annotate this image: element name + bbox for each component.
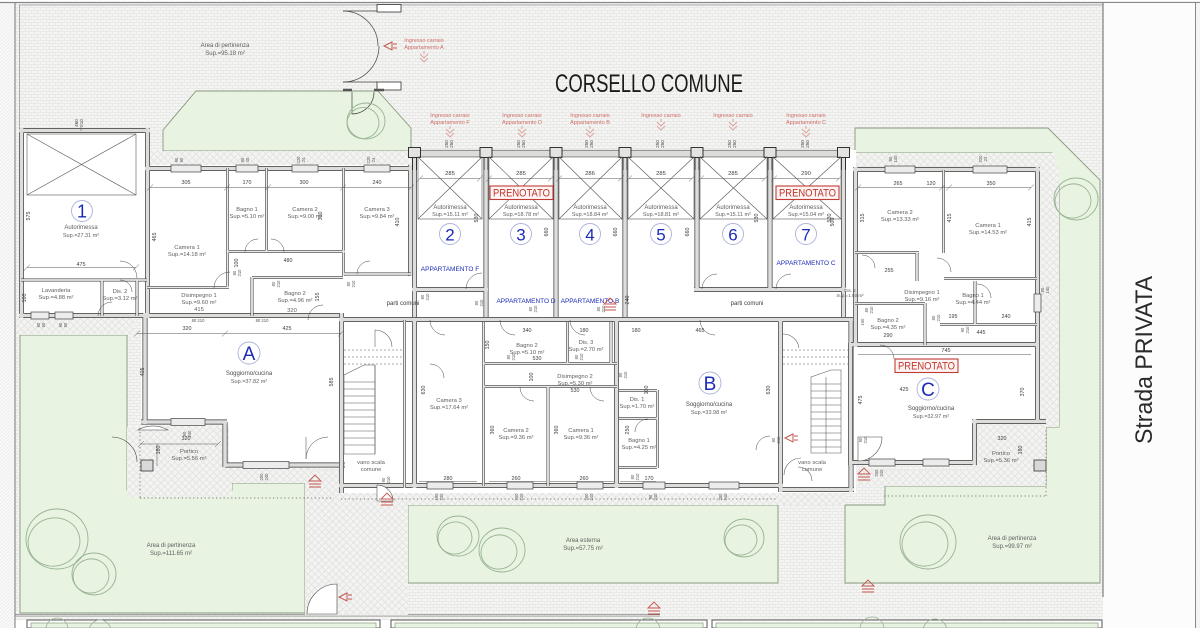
svg-text:415: 415 — [947, 214, 953, 223]
svg-text:Sup.=5.30 m²: Sup.=5.30 m² — [558, 381, 593, 387]
svg-text:Sup.=37.82 m²: Sup.=37.82 m² — [231, 379, 267, 385]
svg-text:285: 285 — [445, 171, 455, 177]
svg-text:40: 40 — [245, 157, 250, 162]
svg-text:360: 360 — [490, 426, 496, 435]
svg-text:320: 320 — [287, 308, 297, 314]
svg-text:150: 150 — [485, 341, 491, 350]
svg-text:Camera 2: Camera 2 — [503, 428, 528, 434]
svg-text:CORSELLO COMUNE: CORSELLO COMUNE — [555, 70, 743, 98]
svg-text:Dis. 2: Dis. 2 — [113, 289, 128, 295]
svg-text:Sup.=99.97 m²: Sup.=99.97 m² — [992, 544, 1032, 550]
svg-text:Autorimessa: Autorimessa — [716, 205, 750, 211]
svg-text:340: 340 — [523, 328, 532, 334]
svg-text:Appartamento B: Appartamento B — [570, 120, 610, 126]
svg-text:240: 240 — [625, 296, 631, 305]
svg-text:155: 155 — [315, 293, 321, 302]
svg-text:24: 24 — [301, 157, 306, 162]
svg-text:Sup.=18.84 m²: Sup.=18.84 m² — [572, 212, 608, 218]
svg-text:210: 210 — [425, 293, 430, 301]
svg-text:parti comuni: parti comuni — [731, 301, 764, 307]
svg-text:140: 140 — [893, 155, 898, 163]
svg-text:210: 210 — [776, 436, 781, 444]
svg-text:Bagno 2: Bagno 2 — [516, 343, 538, 349]
svg-text:425: 425 — [900, 387, 909, 393]
svg-text:210: 210 — [79, 119, 84, 127]
svg-text:90: 90 — [179, 157, 184, 162]
svg-text:Soggiorno/cucina: Soggiorno/cucina — [686, 402, 733, 408]
svg-text:7: 7 — [801, 226, 810, 245]
svg-text:290: 290 — [884, 333, 893, 339]
svg-text:210: 210 — [386, 476, 391, 484]
svg-text:Camera 3: Camera 3 — [436, 398, 461, 404]
svg-text:180: 180 — [580, 328, 589, 334]
svg-text:Appartamento A: Appartamento A — [404, 45, 444, 51]
svg-text:Sup.=32.97 m²: Sup.=32.97 m² — [913, 414, 949, 420]
svg-text:Sup.=27.31 m²: Sup.=27.31 m² — [63, 233, 99, 239]
svg-text:Disimpegno 2: Disimpegno 2 — [557, 374, 592, 380]
svg-text:Sup.=18.81 m²: Sup.=18.81 m² — [643, 212, 679, 218]
svg-text:Camera 1: Camera 1 — [568, 428, 593, 434]
svg-text:240: 240 — [879, 469, 884, 477]
svg-text:Portico: Portico — [180, 449, 198, 455]
svg-text:210: 210 — [635, 473, 640, 481]
svg-text:630: 630 — [766, 386, 772, 395]
svg-text:Sup.=1.70 m²: Sup.=1.70 m² — [620, 404, 655, 410]
svg-text:255: 255 — [885, 268, 894, 274]
svg-text:500: 500 — [830, 218, 836, 227]
svg-text:Sup.=2.70 m²: Sup.=2.70 m² — [569, 347, 604, 353]
svg-text:Autorimessa: Autorimessa — [433, 205, 467, 211]
svg-text:APPARTAMENTO C: APPARTAMENTO C — [776, 260, 835, 267]
svg-text:240: 240 — [723, 493, 728, 501]
svg-text:250: 250 — [660, 140, 665, 148]
svg-text:240: 240 — [373, 180, 382, 186]
svg-text:660: 660 — [685, 228, 691, 237]
svg-text:A: A — [243, 344, 256, 365]
svg-text:320: 320 — [183, 326, 192, 332]
svg-text:APPARTAMENTO D: APPARTAMENTO D — [496, 298, 555, 305]
svg-text:280: 280 — [444, 476, 453, 482]
svg-text:480: 480 — [284, 258, 293, 264]
svg-text:Sup.=15.11 m²: Sup.=15.11 m² — [715, 212, 751, 218]
svg-text:Appartamento C: Appartamento C — [786, 120, 826, 126]
svg-text:Bagno 1: Bagno 1 — [236, 207, 258, 213]
svg-text:Sup.=5.36 m²: Sup.=5.36 m² — [984, 458, 1019, 464]
svg-text:Soggiorno/cucina: Soggiorno/cucina — [226, 371, 273, 377]
svg-text:Portico: Portico — [992, 451, 1010, 457]
svg-text:745: 745 — [942, 348, 951, 354]
svg-text:Sup.=4.96 m²: Sup.=4.96 m² — [278, 298, 313, 304]
svg-text:Disimpegno 1: Disimpegno 1 — [181, 293, 216, 299]
svg-text:Sup.=14.18 m²: Sup.=14.18 m² — [168, 252, 206, 258]
svg-text:425: 425 — [283, 326, 292, 332]
svg-text:150: 150 — [860, 318, 865, 326]
svg-text:80 210: 80 210 — [192, 318, 205, 323]
svg-text:6: 6 — [728, 226, 737, 245]
svg-text:2: 2 — [445, 226, 454, 245]
svg-text:140: 140 — [1045, 286, 1050, 294]
svg-text:370: 370 — [1020, 388, 1026, 397]
svg-text:PRENOTATO: PRENOTATO — [779, 188, 836, 200]
svg-text:Autorimessa: Autorimessa — [504, 205, 538, 211]
svg-text:PRENOTATO: PRENOTATO — [898, 361, 955, 373]
svg-text:410: 410 — [395, 218, 401, 227]
svg-text:210: 210 — [237, 269, 242, 277]
svg-text:285: 285 — [656, 171, 666, 177]
svg-text:475: 475 — [77, 262, 86, 268]
svg-text:Area di pertinenza: Area di pertinenza — [147, 543, 196, 549]
svg-text:240: 240 — [589, 493, 594, 501]
svg-text:Sup.=9.16 m²: Sup.=9.16 m² — [905, 297, 940, 303]
svg-text:C: C — [921, 380, 935, 401]
svg-text:Sup.=4.25 m²: Sup.=4.25 m² — [622, 445, 657, 451]
svg-text:210: 210 — [936, 314, 941, 322]
svg-text:290: 290 — [801, 171, 811, 177]
svg-text:210: 210 — [601, 305, 606, 313]
svg-text:660: 660 — [544, 228, 550, 237]
svg-text:405: 405 — [140, 368, 146, 377]
svg-text:160: 160 — [22, 294, 28, 303]
svg-text:parti comuni: parti comuni — [387, 301, 420, 307]
svg-text:Area di pertinenza: Area di pertinenza — [988, 536, 1037, 542]
svg-text:285: 285 — [516, 171, 526, 177]
svg-text:Camera 3: Camera 3 — [364, 207, 389, 213]
svg-text:Disimpegno 1: Disimpegno 1 — [904, 290, 939, 296]
svg-text:180: 180 — [1018, 446, 1024, 455]
svg-text:Sup.=9.60 m²: Sup.=9.60 m² — [182, 300, 217, 306]
svg-text:Bagno 1: Bagno 1 — [628, 438, 650, 444]
svg-text:170: 170 — [645, 476, 654, 482]
svg-text:300: 300 — [318, 212, 324, 221]
svg-text:24: 24 — [983, 156, 988, 161]
svg-text:250: 250 — [449, 140, 454, 148]
svg-text:660: 660 — [613, 228, 619, 237]
svg-text:Autorimessa: Autorimessa — [573, 205, 607, 211]
svg-text:Autorimessa: Autorimessa — [64, 225, 98, 231]
svg-text:Sup.=1.50 m²: Sup.=1.50 m² — [836, 293, 864, 298]
svg-text:Autorimessa: Autorimessa — [789, 205, 823, 211]
svg-text:24: 24 — [371, 157, 376, 162]
svg-text:comune: comune — [361, 467, 382, 473]
svg-text:530: 530 — [571, 388, 580, 394]
svg-text:445: 445 — [977, 330, 986, 336]
svg-text:210: 210 — [965, 326, 970, 334]
svg-text:Sup.=111.65 m²: Sup.=111.65 m² — [150, 551, 192, 557]
svg-text:415: 415 — [1027, 218, 1033, 227]
svg-text:Sup.=57.75 m²: Sup.=57.75 m² — [563, 546, 603, 552]
svg-text:305: 305 — [182, 180, 191, 186]
svg-text:Soggiorno/cucina: Soggiorno/cucina — [908, 406, 955, 412]
svg-text:210: 210 — [869, 306, 874, 314]
svg-text:80 210: 80 210 — [256, 318, 269, 323]
svg-text:Sup.=9.36 m²: Sup.=9.36 m² — [564, 435, 599, 441]
svg-text:210: 210 — [579, 353, 584, 361]
svg-text:Sup.=17.64 m²: Sup.=17.64 m² — [430, 405, 468, 411]
svg-text:Bagno 2: Bagno 2 — [284, 291, 306, 297]
svg-text:350: 350 — [987, 181, 996, 187]
svg-text:250: 250 — [589, 140, 594, 148]
svg-text:210: 210 — [863, 436, 868, 444]
svg-text:250: 250 — [521, 140, 526, 148]
svg-text:250: 250 — [805, 140, 810, 148]
svg-text:Sup.=15.04 m²: Sup.=15.04 m² — [788, 212, 824, 218]
svg-text:475: 475 — [858, 396, 864, 405]
svg-text:Sup.=4.88 m²: Sup.=4.88 m² — [39, 295, 74, 301]
svg-text:100: 100 — [234, 259, 240, 268]
svg-text:180: 180 — [632, 328, 641, 334]
svg-text:260: 260 — [512, 476, 521, 482]
svg-text:210: 210 — [511, 353, 516, 361]
svg-text:530: 530 — [533, 356, 542, 362]
svg-text:170: 170 — [243, 180, 252, 186]
svg-text:360: 360 — [554, 426, 560, 435]
svg-text:180: 180 — [156, 446, 162, 455]
svg-text:120: 120 — [927, 181, 936, 187]
svg-text:Sup.=5.10 m²: Sup.=5.10 m² — [230, 214, 265, 220]
svg-text:B: B — [704, 374, 717, 395]
svg-text:210: 210 — [533, 305, 538, 313]
svg-text:Dis. 3: Dis. 3 — [579, 340, 594, 346]
svg-text:Sup.=95.18 m²: Sup.=95.18 m² — [205, 51, 245, 57]
svg-text:Sup.=9.84 m²: Sup.=9.84 m² — [360, 214, 395, 220]
svg-text:240: 240 — [1002, 314, 1011, 320]
svg-text:Sup.=13.33 m²: Sup.=13.33 m² — [881, 217, 919, 223]
svg-text:260: 260 — [580, 476, 589, 482]
svg-text:Dis. 1: Dis. 1 — [630, 397, 645, 403]
svg-text:Sup.=18.78 m²: Sup.=18.78 m² — [503, 212, 539, 218]
svg-text:4: 4 — [585, 226, 594, 245]
svg-text:Camera 2: Camera 2 — [887, 210, 912, 216]
svg-text:PRENOTATO: PRENOTATO — [493, 188, 550, 200]
svg-text:320: 320 — [182, 436, 191, 442]
svg-text:Lavanderia: Lavanderia — [42, 288, 71, 294]
svg-text:Autorimessa: Autorimessa — [644, 205, 678, 211]
svg-text:265: 265 — [894, 181, 903, 187]
svg-text:100: 100 — [644, 386, 650, 395]
svg-text:285: 285 — [728, 171, 738, 177]
svg-text:Sup.=4.44 m²: Sup.=4.44 m² — [956, 300, 991, 306]
svg-text:465: 465 — [696, 328, 705, 334]
svg-text:240: 240 — [653, 493, 658, 501]
svg-text:210: 210 — [351, 280, 356, 288]
svg-text:Sup.=5.56 m²: Sup.=5.56 m² — [172, 456, 207, 462]
svg-text:Sup.=3.12 m²: Sup.=3.12 m² — [103, 296, 138, 302]
svg-text:300: 300 — [300, 180, 309, 186]
svg-text:465: 465 — [152, 233, 158, 242]
svg-text:Sup.=33.98 m²: Sup.=33.98 m² — [691, 410, 727, 416]
svg-text:90: 90 — [41, 322, 46, 327]
svg-text:250: 250 — [625, 426, 631, 435]
svg-text:3: 3 — [516, 226, 525, 245]
svg-text:APPARTAMENTO F: APPARTAMENTO F — [421, 266, 479, 273]
svg-text:210: 210 — [276, 280, 281, 288]
svg-text:315: 315 — [860, 214, 866, 223]
svg-text:Ingresso carraio: Ingresso carraio — [404, 38, 443, 44]
svg-text:530: 530 — [474, 214, 480, 223]
svg-text:Ingresso carraio: Ingresso carraio — [786, 113, 825, 119]
svg-text:1: 1 — [77, 202, 87, 222]
svg-text:210: 210 — [623, 371, 628, 379]
svg-text:vano scala: vano scala — [798, 460, 826, 466]
svg-text:Sup.=9.36 m²: Sup.=9.36 m² — [499, 435, 534, 441]
svg-text:90: 90 — [63, 322, 68, 327]
svg-text:Area esterna: Area esterna — [566, 538, 601, 544]
svg-text:Camera 1: Camera 1 — [975, 223, 1000, 229]
svg-text:286: 286 — [585, 171, 595, 177]
svg-text:Area di pertinenza: Area di pertinenza — [201, 43, 250, 49]
svg-text:Sup.=15.11 m²: Sup.=15.11 m² — [432, 212, 468, 218]
svg-text:Bagno 1: Bagno 1 — [962, 293, 984, 299]
svg-text:5: 5 — [656, 226, 665, 245]
svg-text:320: 320 — [998, 436, 1007, 442]
svg-text:210: 210 — [479, 299, 484, 307]
svg-text:Strada PRIVATA: Strada PRIVATA — [1131, 276, 1158, 444]
svg-text:530: 530 — [754, 214, 760, 223]
svg-text:Camera 1: Camera 1 — [174, 245, 199, 251]
svg-text:Bagno 2: Bagno 2 — [877, 318, 899, 324]
svg-text:Sup.=14.53 m²: Sup.=14.53 m² — [969, 230, 1007, 236]
svg-text:Ingresso carraio: Ingresso carraio — [713, 113, 752, 119]
svg-text:Appartamento F: Appartamento F — [430, 120, 470, 126]
svg-text:Ingresso carraio: Ingresso carraio — [641, 113, 680, 119]
svg-text:Appartamento D: Appartamento D — [502, 120, 542, 126]
svg-text:575: 575 — [26, 212, 32, 221]
svg-text:Ingresso carraio: Ingresso carraio — [502, 113, 541, 119]
svg-text:585: 585 — [329, 378, 335, 387]
svg-text:Ingresso carraio: Ingresso carraio — [430, 113, 469, 119]
svg-text:comune: comune — [802, 467, 823, 473]
svg-text:Ingresso carraio: Ingresso carraio — [570, 113, 609, 119]
svg-text:Camera 2: Camera 2 — [292, 207, 317, 213]
svg-text:vano scala: vano scala — [357, 460, 385, 466]
svg-text:240: 240 — [439, 493, 444, 501]
svg-text:630: 630 — [421, 386, 427, 395]
svg-text:250: 250 — [732, 140, 737, 148]
svg-text:240: 240 — [264, 473, 269, 481]
svg-text:195: 195 — [949, 314, 958, 320]
svg-text:240: 240 — [519, 493, 524, 501]
svg-text:Sup.=4.35 m²: Sup.=4.35 m² — [871, 325, 906, 331]
svg-text:100: 100 — [529, 373, 535, 382]
svg-text:415: 415 — [194, 307, 204, 313]
